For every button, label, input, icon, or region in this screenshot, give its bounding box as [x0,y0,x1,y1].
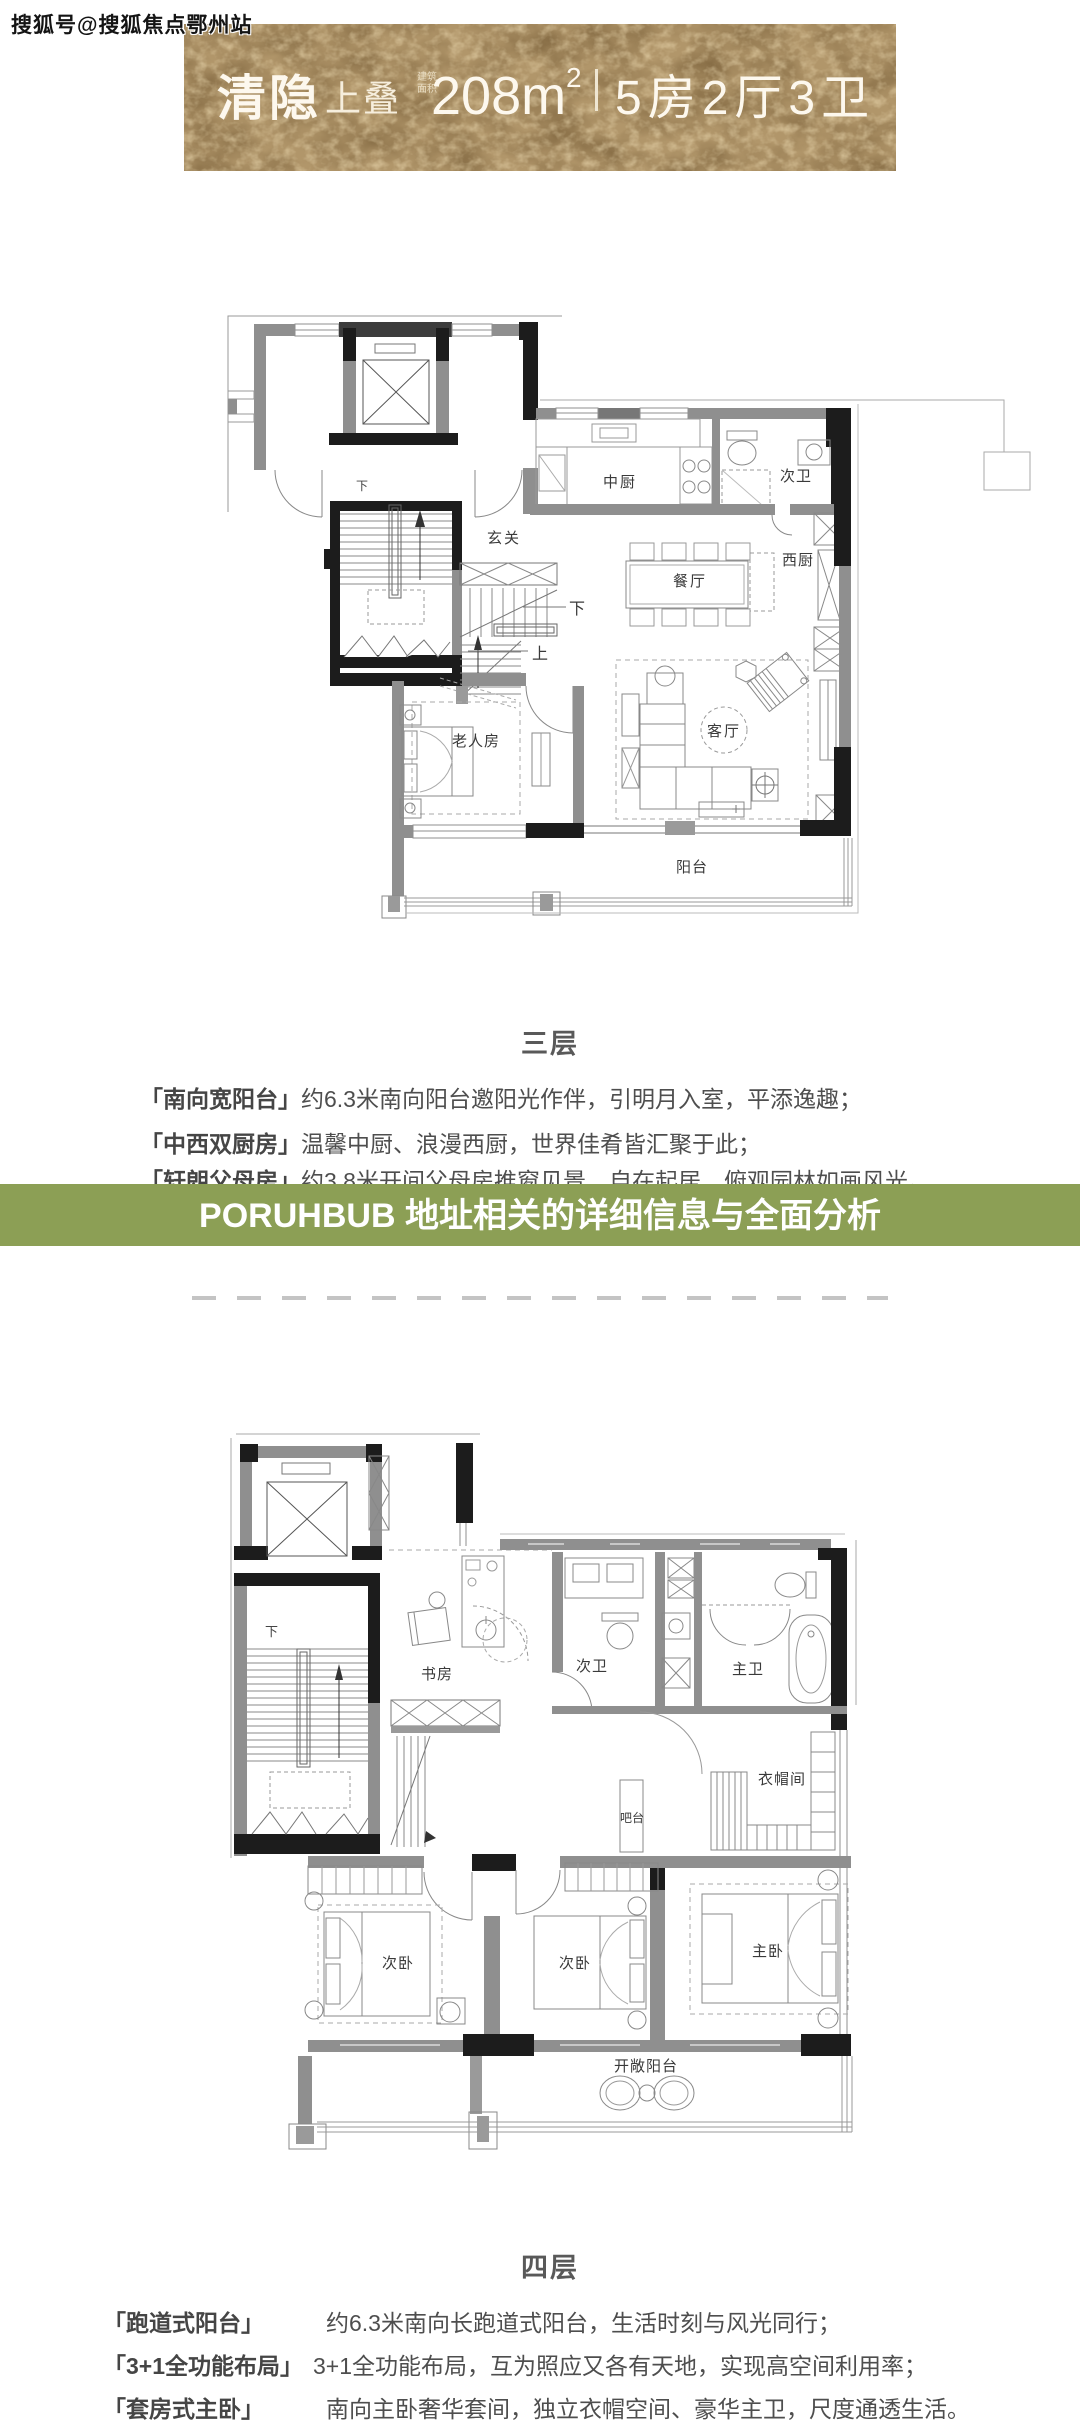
svg-text:下: 下 [356,479,368,493]
svg-text:书房: 书房 [421,1666,453,1683]
svg-text:主卫: 主卫 [732,1661,764,1678]
svg-text:老人房: 老人房 [452,733,500,750]
svg-text:玄关: 玄关 [487,530,521,547]
svg-text:阳台: 阳台 [676,859,708,876]
svg-text:客厅: 客厅 [707,723,741,740]
svg-text:西厨: 西厨 [782,553,814,569]
svg-text:次卫: 次卫 [576,1658,608,1675]
svg-text:次卧: 次卧 [559,1955,591,1972]
svg-text:衣帽间: 衣帽间 [758,1771,806,1788]
svg-text:下: 下 [569,601,585,618]
svg-text:开敞阳台: 开敞阳台 [614,2058,678,2075]
svg-text:吧台: 吧台 [620,1810,644,1825]
svg-text:主卧: 主卧 [752,1943,784,1960]
svg-text:餐厅: 餐厅 [673,573,707,590]
svg-text:次卧: 次卧 [382,1955,414,1972]
svg-text:次卫: 次卫 [780,468,812,485]
svg-text:上: 上 [532,645,548,663]
svg-text:下: 下 [265,1624,278,1639]
svg-text:中厨: 中厨 [603,474,637,491]
